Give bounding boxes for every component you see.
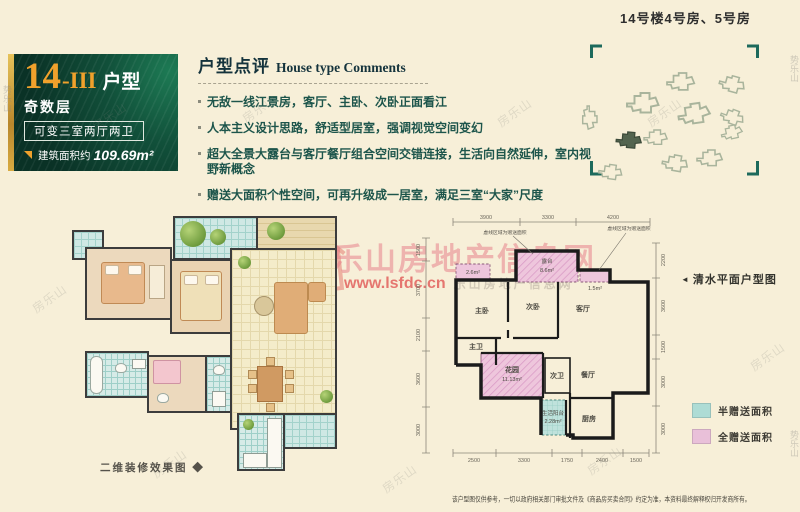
render-room-living — [230, 248, 337, 430]
render-room-bath2 — [205, 355, 232, 413]
legend-swatch-pink — [692, 429, 711, 444]
room-label-garden: 花园 — [505, 365, 519, 374]
gift-annotation: 虚线区域为赠送面积 — [483, 229, 526, 236]
edge-watermark: 势乐山 — [788, 430, 800, 457]
dim-label: 3000 — [661, 423, 667, 435]
comment-item: 赠送大面积个性空间，可再升级成一居室，满足三室“大家”尺度 — [198, 188, 598, 203]
legend-swatch-teal — [692, 403, 711, 418]
render-plan — [62, 202, 340, 474]
highlighted-building — [616, 131, 642, 149]
room-label-master-bath: 主卫 — [469, 342, 483, 351]
housetype-word: 户型 — [103, 67, 141, 94]
stat-built-area: 建筑面积约 109.69m² — [24, 147, 168, 163]
dim-label: 2200 — [661, 254, 667, 266]
disclaimer-text: 该户型图仅供参考，一切以政府相关部门审批文件及《商品房买卖合同》约定为准，本资料… — [452, 495, 731, 505]
housetype-suffix: -III — [62, 68, 97, 94]
room-label-kitchen: 厨房 — [582, 414, 596, 423]
dim-label: 3300 — [518, 458, 530, 464]
render-room-kitchen — [237, 413, 285, 471]
gift-area-garden — [481, 353, 543, 398]
edge-watermark: 势乐山 — [788, 55, 800, 82]
comment-item: 人本主义设计思路，舒适型居室，强调视觉空间变幻 — [198, 121, 598, 136]
comments-section: 户型点评 House type Comments 无敌一线江景房，客厅、主卧、次… — [198, 52, 598, 203]
housetype-panel: 14 -III 户型 奇数层 可变三室两厅两卫 建筑面积约 109.69m² 最… — [8, 54, 178, 171]
comment-text: 超大全景大露台与客厅餐厅组合空间交错连接，生活向自然延伸，室内视野新概念 — [207, 147, 598, 177]
gift-area-bay-right — [580, 270, 610, 282]
room-area-service-balcony: 2.28m² — [544, 419, 561, 425]
room-label-living: 客厅 — [575, 304, 590, 313]
room-label-second-bath: 次卫 — [550, 371, 564, 380]
legend-item-full-gift: 全赠送面积 — [692, 429, 773, 444]
plant-icon — [210, 229, 226, 245]
dim-label: 2400 — [596, 458, 608, 464]
floorplan-caption: ◄清水平面户型图 — [681, 271, 777, 287]
comments-title-cn: 户型点评 — [198, 52, 270, 77]
render-room-bedroom1 — [85, 247, 172, 320]
dim-label: 3300 — [542, 215, 554, 221]
dim-label: 3000 — [416, 424, 422, 436]
stat-max-area: 最大可享面积约 135.84m² — [24, 169, 168, 171]
dim-label: 3600 — [661, 300, 667, 312]
dim-label: 2500 — [468, 458, 480, 464]
stat-built-area-label: 建筑面积约 — [38, 148, 91, 163]
plant-icon — [180, 221, 206, 247]
dim-label: 1500 — [630, 458, 642, 464]
pointer-left-icon: ◄ — [681, 275, 690, 284]
comment-text: 人本主义设计思路，舒适型居室，强调视觉空间变幻 — [207, 121, 483, 136]
comments-title: 户型点评 House type Comments — [198, 52, 428, 84]
scatter-watermark: 房乐山 — [747, 338, 789, 374]
room-area-terrace: 8.6m² — [540, 268, 554, 274]
dim-label: 3900 — [480, 215, 492, 221]
housetype-panel-body: 14 -III 户型 奇数层 可变三室两厅两卫 建筑面积约 109.69m² 最… — [14, 54, 178, 171]
floorplan-diagram: 3900 3300 4200 2500 3300 1750 2400 1500 … — [413, 210, 671, 468]
comments-title-en: House type Comments — [276, 60, 406, 76]
gift-area-service-balcony — [541, 400, 566, 435]
bullet-dot-icon — [198, 100, 201, 103]
dim-label: 4200 — [607, 215, 619, 221]
siteplan-title: 14号楼4号房、5号房 — [620, 8, 751, 27]
housetype-title: 14 -III 户型 — [24, 60, 168, 94]
dim-label: 3700 — [416, 284, 422, 296]
bullet-dot-icon — [198, 126, 201, 129]
render-room-study — [147, 355, 207, 413]
room-label-terrace: 露台 — [541, 257, 553, 265]
dim-label: 1500 — [416, 244, 422, 256]
render-plan-caption: 二维装修效果图 ◆ — [100, 460, 205, 475]
comment-text: 赠送大面积个性空间，可再升级成一居室，满足三室“大家”尺度 — [207, 188, 543, 203]
comment-item: 无敌一线江景房，客厅、主卧、次卧正面看江 — [198, 95, 598, 110]
building-outlines — [583, 73, 747, 180]
stat-max-area-label: 最大可享面积约 — [38, 169, 105, 171]
render-room-bedroom2 — [170, 259, 232, 334]
room-label-second-bed: 次卧 — [526, 302, 540, 311]
plant-icon — [267, 222, 285, 240]
siteplan-map — [572, 28, 777, 192]
legend-label: 半赠送面积 — [718, 403, 773, 418]
dim-label: 1750 — [561, 458, 573, 464]
variant-label: 可变三室两厅两卫 — [24, 121, 144, 141]
dim-label: 3600 — [416, 373, 422, 385]
housetype-number: 14 — [24, 60, 61, 93]
room-label-master-bed: 主卧 — [475, 306, 489, 315]
room-area-bay-left: 2.6m² — [466, 270, 480, 276]
floorplan-caption-text: 清水平面户型图 — [693, 274, 777, 286]
corner-flag-icon — [24, 151, 32, 159]
gift-area-terrace — [516, 251, 578, 282]
gift-annotation: 虚线区域为赠送面积 — [607, 225, 650, 232]
dim-label: 2100 — [416, 329, 422, 341]
room-area-garden: 11.13m² — [502, 377, 522, 383]
room-area-bay-right: 1.5m² — [588, 286, 602, 292]
bullet-dot-icon — [198, 152, 201, 155]
render-room-bath1 — [85, 351, 149, 398]
flyer-page: 14 -III 户型 奇数层 可变三室两厅两卫 建筑面积约 109.69m² 最… — [0, 0, 800, 512]
room-label-dining: 餐厅 — [580, 370, 595, 379]
bullet-dot-icon — [198, 193, 201, 196]
room-label-service-balcony: 生活阳台 — [542, 409, 565, 417]
dim-label: 3000 — [661, 376, 667, 388]
gift-area-legend: 半赠送面积 全赠送面积 — [692, 403, 773, 455]
dim-label: 1500 — [661, 341, 667, 353]
comment-item: 超大全景大露台与客厅餐厅组合空间交错连接，生活向自然延伸，室内视野新概念 — [198, 147, 598, 177]
stat-built-area-value: 109.69m² — [94, 147, 154, 163]
floor-parity-label: 奇数层 — [24, 97, 168, 117]
legend-item-half-gift: 半赠送面积 — [692, 403, 773, 418]
render-room-rear-balcony — [283, 413, 337, 449]
comment-text: 无敌一线江景房，客厅、主卧、次卧正面看江 — [207, 95, 447, 110]
legend-label: 全赠送面积 — [718, 429, 773, 444]
edge-watermark: 势乐山 — [1, 85, 14, 112]
